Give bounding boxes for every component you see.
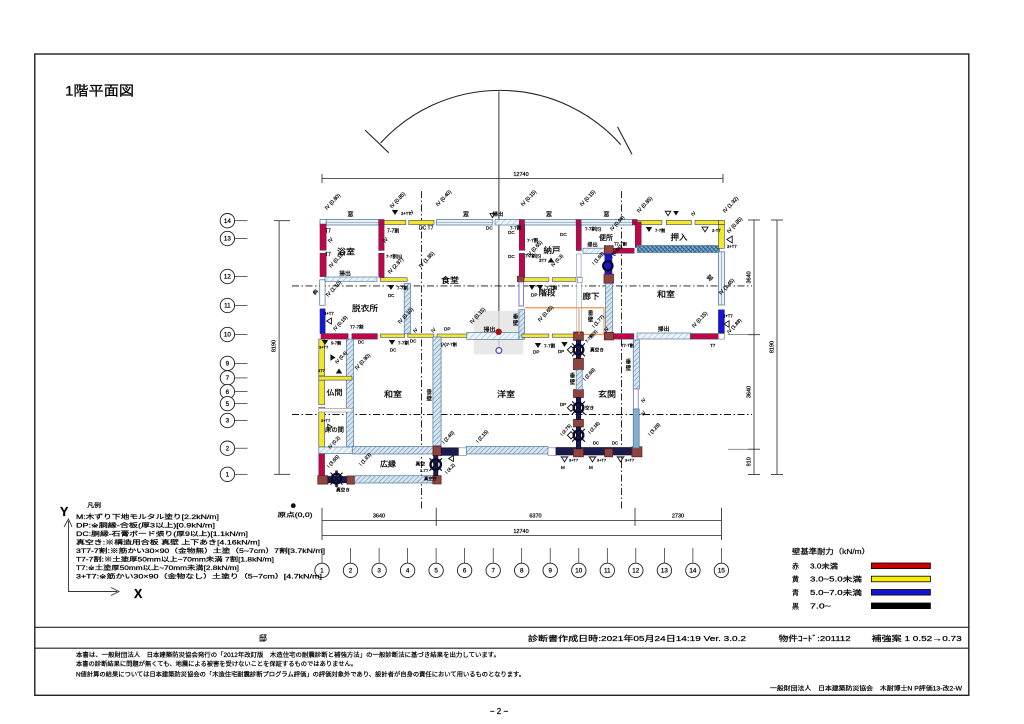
svg-text:廊下: 廊下: [583, 291, 600, 301]
svg-text:4: 4: [406, 568, 410, 575]
svg-text:DC: DC: [508, 230, 515, 235]
svg-text:T7: T7: [325, 229, 331, 235]
svg-text:12: 12: [632, 568, 640, 575]
svg-text:7: 7: [226, 375, 230, 382]
svg-text:5: 5: [226, 401, 230, 408]
svg-text:掃出: 掃出: [484, 326, 496, 334]
svg-text:垂: 垂: [570, 373, 576, 380]
svg-text:和室: 和室: [384, 389, 402, 399]
svg-text:3640: 3640: [747, 386, 753, 398]
svg-text:3640: 3640: [747, 271, 753, 283]
svg-text:12740: 12740: [513, 529, 528, 535]
svg-text:7.0~: 7.0~: [810, 603, 831, 610]
svg-text:DP: DP: [444, 327, 450, 332]
svg-text:13: 13: [224, 236, 232, 243]
svg-text:真空き: 真空き: [590, 347, 604, 354]
svg-text:T7-7割:※土塗厚50mm以上~70mm未満 7割[1.8: T7-7割:※土塗厚50mm以上~70mm未満 7割[1.8kN/m]: [76, 556, 274, 564]
svg-text:赤: 赤: [792, 562, 799, 570]
svg-text:14: 14: [689, 568, 697, 575]
svg-text:洋室: 洋室: [497, 389, 515, 399]
svg-text:3+T7:※筋かい30×90（金物なし）土塗り（5~7cm）: 3+T7:※筋かい30×90（金物なし）土塗り（5~7cm）[4.7kN/m]: [76, 573, 322, 581]
svg-text:7-7割: 7-7割: [398, 340, 409, 347]
svg-text:13: 13: [661, 568, 669, 575]
svg-text:11: 11: [224, 303, 231, 310]
svg-text:8190: 8190: [770, 341, 776, 353]
svg-text:壁基準耐力（kN/m）: 壁基準耐力（kN/m）: [792, 547, 870, 556]
svg-text:T7-7割: T7-7割: [621, 342, 634, 349]
svg-text:DC:胴縁-石膏ボード張り(厚9以上)[1.1kN/m]: DC:胴縁-石膏ボード張り(厚9以上)[1.1kN/m]: [76, 530, 248, 538]
svg-text:3T7: 3T7: [539, 258, 547, 263]
svg-text:DC: DC: [410, 339, 416, 344]
svg-text:9: 9: [226, 361, 230, 368]
svg-text:12: 12: [224, 274, 232, 281]
svg-text:910: 910: [747, 457, 753, 466]
svg-text:DP: DP: [531, 293, 537, 298]
svg-text:診断書作成日時:2021年05月24日14:19 Ver.: 診断書作成日時:2021年05月24日14:19 Ver. 3.0.2: [528, 634, 746, 643]
svg-text:3+T7: 3+T7: [319, 345, 329, 350]
svg-text:(A)7-7割: (A)7-7割: [441, 341, 457, 348]
svg-text:T7:※土塗厚50mm以上~70mm未満[2.8kN/m]: T7:※土塗厚50mm以上~70mm未満[2.8kN/m]: [76, 564, 239, 572]
svg-text:DC: DC: [612, 441, 618, 446]
svg-text:7-7割: 7-7割: [544, 343, 556, 350]
svg-text:DP: DP: [533, 350, 539, 355]
svg-text:壁: 壁: [588, 316, 594, 324]
svg-text:2: 2: [349, 568, 353, 575]
svg-text:掃出: 掃出: [339, 270, 351, 278]
svg-text:T7-7割: T7-7割: [350, 324, 364, 331]
svg-text:DP: DP: [558, 349, 564, 354]
svg-text:黒: 黒: [792, 602, 799, 610]
svg-text:DC: DC: [388, 293, 394, 298]
svg-text:押入: 押入: [671, 232, 688, 242]
svg-text:垂: 垂: [626, 359, 632, 366]
svg-text:10: 10: [224, 332, 232, 339]
svg-text:14: 14: [224, 218, 232, 225]
svg-text:3+T7: 3+T7: [625, 458, 635, 463]
svg-text:窓: 窓: [347, 210, 353, 218]
svg-text:DC: DC: [390, 348, 396, 353]
svg-text:7-7割(5): 7-7割(5): [585, 226, 602, 233]
svg-text:10: 10: [575, 568, 583, 575]
svg-text:M:木ずり下地モルタル塗り[2.2kN/m]: M:木ずり下地モルタル塗り[2.2kN/m]: [76, 513, 219, 521]
svg-text:T7: T7: [710, 343, 716, 348]
svg-text:窓: 窓: [463, 210, 469, 218]
svg-text:和室: 和室: [657, 289, 675, 299]
svg-text:壁: 壁: [626, 364, 632, 372]
svg-text:DC: DC: [593, 441, 599, 446]
svg-text:真空き: 真空き: [336, 487, 350, 494]
svg-text:本書は、一般財団法人 日本建築防災協会発行の「2012年改訂: 本書は、一般財団法人 日本建築防災協会発行の「2012年改訂版 木造住宅の耐震診…: [76, 651, 500, 659]
svg-text:6: 6: [463, 568, 467, 575]
svg-text:12740: 12740: [513, 172, 528, 178]
svg-text:6370: 6370: [529, 514, 541, 520]
svg-text:2730: 2730: [672, 514, 684, 520]
svg-text:壁: 壁: [570, 378, 576, 386]
svg-text:窓: 窓: [546, 210, 552, 218]
svg-text:掃出: 掃出: [587, 242, 598, 249]
svg-text:T7-7割: T7-7割: [614, 241, 627, 248]
svg-text:3+T7: 3+T7: [321, 418, 331, 423]
svg-text:垂: 垂: [513, 314, 519, 321]
svg-text:3: 3: [377, 568, 381, 575]
svg-text:15: 15: [718, 568, 726, 575]
svg-text:1: 1: [226, 472, 230, 479]
svg-text:3+T7: 3+T7: [597, 458, 607, 463]
svg-text:真空: 真空: [416, 461, 426, 468]
svg-text:3: 3: [226, 418, 230, 425]
svg-text:仏間: 仏間: [327, 388, 343, 397]
svg-text:物件ｺｰﾄﾞ:201112: 物件ｺｰﾄﾞ:201112: [779, 634, 851, 643]
svg-text:垂: 垂: [426, 389, 432, 396]
svg-text:2: 2: [226, 445, 230, 452]
svg-text:真空き: 真空き: [424, 475, 437, 482]
svg-text:3+T7: 3+T7: [324, 311, 334, 316]
svg-text:− 2 −: − 2 −: [490, 707, 509, 716]
svg-text:3-T7: 3-T7: [712, 228, 721, 233]
svg-text:3.0未満: 3.0未満: [810, 561, 838, 570]
svg-text:邸: 邸: [259, 634, 267, 643]
svg-text:掃出: 掃出: [658, 325, 670, 333]
svg-text:DC T7: DC T7: [419, 226, 434, 232]
svg-text:5.0~7.0未満: 5.0~7.0未満: [810, 588, 862, 597]
svg-text:3640: 3640: [373, 514, 385, 520]
svg-text:3+T7: 3+T7: [727, 244, 737, 249]
svg-text:一般財団法人 日本建築防災協会 木耐博士N P評価13-改: 一般財団法人 日本建築防災協会 木耐博士N P評価13-改2-W: [770, 685, 962, 693]
svg-text:真空き:※構造用合板 真壁 上下あき[4.16kN/m]: 真空き:※構造用合板 真壁 上下あき[4.16kN/m]: [76, 539, 260, 547]
svg-text:補強案 1 0.52→0.73: 補強案 1 0.52→0.73: [872, 634, 962, 643]
svg-text:7: 7: [491, 568, 495, 575]
svg-text:M: M: [589, 465, 593, 470]
svg-text:青: 青: [792, 588, 799, 597]
svg-text:本書の診断結果に問題が無くても、地震による被害を受けないこと: 本書の診断結果に問題が無くても、地震による被害を受けないことを保証するものではあ…: [76, 660, 357, 668]
svg-text:N値計算の結果については日本建築防災協会の「木造住宅耐震診断: N値計算の結果については日本建築防災協会の「木造住宅耐震診断プログラム評価」の評…: [76, 671, 525, 679]
svg-text:壁: 壁: [426, 395, 432, 403]
svg-text:原点(0,0): 原点(0,0): [278, 511, 313, 519]
svg-text:X: X: [134, 587, 143, 601]
svg-text:3.0~5.0未満: 3.0~5.0未満: [810, 575, 862, 584]
svg-text:7-7割: 7-7割: [397, 285, 408, 292]
svg-text:壁: 壁: [513, 319, 519, 327]
svg-text:Y: Y: [60, 505, 69, 519]
svg-text:3T7-7割:※筋かい30×90（金物無）土塗（5~7cm）: 3T7-7割:※筋かい30×90（金物無）土塗（5~7cm）7割[3.7kN/m…: [76, 547, 325, 555]
svg-text:3T7: 3T7: [318, 368, 326, 373]
svg-text:11: 11: [604, 568, 611, 575]
svg-text:6: 6: [226, 389, 230, 396]
svg-text:1階平面図: 1階平面図: [65, 84, 134, 99]
svg-text:DP:※胴縁-合板(厚3以上)[0.9kN/m]: DP:※胴縁-合板(厚3以上)[0.9kN/m]: [76, 522, 215, 530]
svg-text:5: 5: [434, 568, 438, 575]
svg-text:納戸: 納戸: [544, 245, 561, 255]
svg-text:7-7割: 7-7割: [387, 228, 399, 235]
svg-text:食堂: 食堂: [441, 275, 459, 285]
svg-text:DC: DC: [358, 340, 364, 345]
svg-text:7-7割: 7-7割: [655, 227, 665, 234]
svg-text:DC: DC: [508, 254, 515, 259]
svg-text:3+T7: 3+T7: [569, 458, 579, 463]
svg-text:広縁: 広縁: [380, 459, 397, 469]
svg-text:DP: DP: [560, 402, 566, 407]
svg-text:便所: 便所: [599, 233, 613, 242]
svg-text:3+T7: 3+T7: [723, 314, 733, 319]
svg-text:8190: 8190: [272, 340, 278, 352]
svg-text:3-T7: 3-T7: [420, 468, 429, 473]
svg-text:DC: DC: [560, 232, 567, 237]
svg-text:M: M: [561, 465, 565, 470]
svg-text:窓: 窓: [603, 210, 609, 218]
svg-text:7-7割: 7-7割: [546, 285, 558, 292]
svg-text:空き: 空き: [585, 405, 594, 411]
svg-text:脱衣所: 脱衣所: [352, 303, 378, 313]
svg-text:9: 9: [548, 568, 552, 575]
svg-text:凡例: 凡例: [87, 502, 101, 510]
svg-text:9-7割: 9-7割: [331, 340, 341, 347]
svg-text:黄: 黄: [792, 575, 799, 584]
svg-text:T7: T7: [325, 252, 331, 258]
svg-text:玄関: 玄関: [598, 389, 616, 399]
svg-text:8: 8: [520, 568, 524, 575]
svg-text:DC: DC: [486, 226, 493, 231]
svg-text:垂: 垂: [588, 310, 594, 317]
